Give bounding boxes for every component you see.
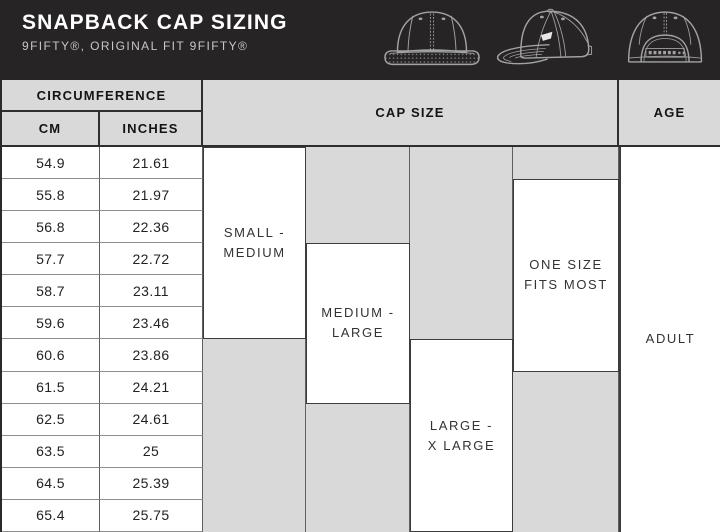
inches-cell: 22.72 — [100, 243, 203, 275]
cm-cell: 60.6 — [2, 339, 100, 371]
size-label: MEDIUM - LARGE — [321, 303, 394, 343]
inches-cell: 25 — [100, 436, 203, 468]
inches-cell: 21.61 — [100, 147, 203, 179]
column-header-cm: CM — [2, 112, 100, 147]
cm-cell: 65.4 — [2, 500, 100, 532]
age-range-adult: ADULT — [619, 147, 720, 532]
cm-cell: 63.5 — [2, 436, 100, 468]
size-col3-shaded — [410, 147, 513, 339]
cap-illustrations — [384, 6, 712, 70]
size-label: ONE SIZE FITS MOST — [524, 255, 608, 295]
inches-cell: 23.86 — [100, 339, 203, 371]
size-label: SMALL - MEDIUM — [223, 223, 285, 263]
page-subtitle: 9FIFTY®, ORIGINAL FIT 9FIFTY® — [22, 39, 288, 53]
cm-cell: 62.5 — [2, 404, 100, 436]
cm-cell: 55.8 — [2, 179, 100, 211]
cap-front-icon — [384, 6, 480, 70]
sizing-table: CIRCUMFERENCE CM INCHES CAP SIZE AGE 54.… — [0, 80, 720, 532]
inches-cell: 22.36 — [100, 211, 203, 243]
column-header-cap-size: CAP SIZE — [203, 80, 619, 147]
header-titles: SNAPBACK CAP SIZING 9FIFTY®, ORIGINAL FI… — [22, 11, 288, 53]
size-col4-shaded-bottom — [513, 372, 619, 532]
inches-cell: 23.11 — [100, 275, 203, 307]
age-label: ADULT — [646, 329, 696, 349]
inches-cell: 23.46 — [100, 307, 203, 339]
column-header-age: AGE — [619, 80, 720, 147]
cap-side-icon — [496, 6, 604, 70]
page-title: SNAPBACK CAP SIZING — [22, 11, 288, 34]
size-range-small-medium: SMALL - MEDIUM — [203, 147, 306, 339]
size-label: LARGE - X LARGE — [428, 416, 496, 456]
snapback-sizing-page: SNAPBACK CAP SIZING 9FIFTY®, ORIGINAL FI… — [0, 0, 720, 532]
page-header: SNAPBACK CAP SIZING 9FIFTY®, ORIGINAL FI… — [0, 0, 720, 80]
cm-cell: 54.9 — [2, 147, 100, 179]
cm-cell: 58.7 — [2, 275, 100, 307]
column-header-inches: INCHES — [100, 112, 203, 147]
cm-cell: 57.7 — [2, 243, 100, 275]
cm-cell: 64.5 — [2, 468, 100, 500]
size-range-medium-large: MEDIUM - LARGE — [306, 243, 410, 403]
size-col4-shaded-top — [513, 147, 619, 179]
size-col2-shaded-top — [306, 147, 410, 243]
cm-cell: 59.6 — [2, 307, 100, 339]
size-range-one-size: ONE SIZE FITS MOST — [513, 179, 619, 372]
cap-back-icon — [620, 6, 712, 70]
column-header-circumference: CIRCUMFERENCE — [2, 80, 203, 112]
inches-cell: 24.61 — [100, 404, 203, 436]
size-col1-shaded — [203, 339, 306, 532]
cm-cell: 56.8 — [2, 211, 100, 243]
inches-cell: 24.21 — [100, 372, 203, 404]
inches-cell: 21.97 — [100, 179, 203, 211]
size-col2-shaded-bottom — [306, 404, 410, 532]
cm-cell: 61.5 — [2, 372, 100, 404]
inches-cell: 25.39 — [100, 468, 203, 500]
inches-cell: 25.75 — [100, 500, 203, 532]
size-range-large-xlarge: LARGE - X LARGE — [410, 339, 513, 532]
